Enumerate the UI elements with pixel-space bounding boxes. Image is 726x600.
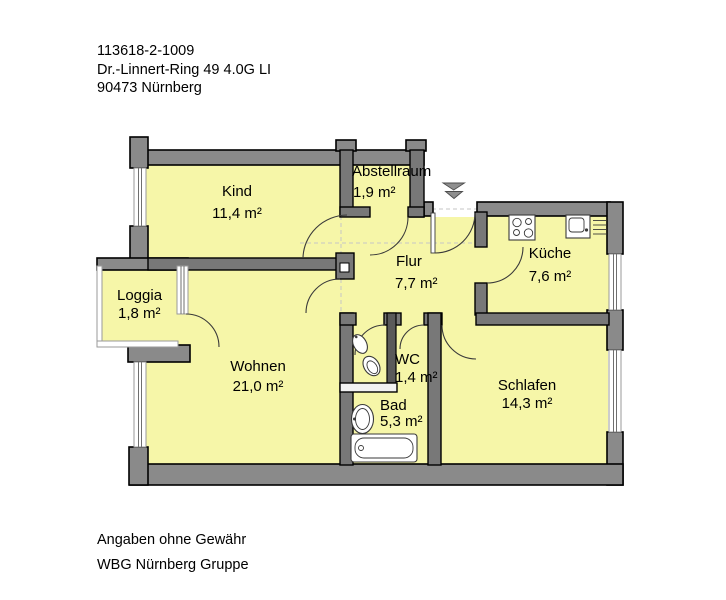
pillar-bottom-left bbox=[129, 447, 148, 485]
wall-bad-schlafen-divider bbox=[428, 313, 441, 465]
loggia-edge-bottom bbox=[97, 341, 178, 347]
wall-wc-bad-divider bbox=[340, 383, 397, 392]
abstellraum-label: Abstellraum bbox=[352, 163, 431, 180]
floorplan-page: 113618-2-1009 Dr.-Linnert-Ring 49 4.0G L… bbox=[0, 0, 726, 600]
abstellraum-area: 1,9 m² bbox=[353, 184, 396, 201]
schlafen-area: 14,3 m² bbox=[502, 395, 553, 412]
footer-disclaimer: Angaben ohne Gewähr bbox=[97, 532, 246, 548]
kind-area: 11,4 m² bbox=[212, 205, 262, 222]
floorplan-canvas: 113618-2-1009 Dr.-Linnert-Ring 49 4.0G L… bbox=[0, 0, 726, 600]
window-schlafen-right bbox=[609, 350, 621, 432]
window-kueche-right bbox=[609, 254, 621, 310]
wall-kueche-left-lower bbox=[475, 283, 487, 315]
wohnen-area: 21,0 m² bbox=[233, 378, 284, 395]
flur-area: 7,7 m² bbox=[395, 275, 438, 292]
kueche-label: Küche bbox=[529, 245, 572, 262]
wall-hall-bottom-a bbox=[340, 313, 356, 325]
kind-label: Kind bbox=[222, 183, 252, 200]
header: 113618-2-1009 Dr.-Linnert-Ring 49 4.0G L… bbox=[97, 43, 271, 96]
header-city: 90473 Nürnberg bbox=[97, 80, 202, 96]
wall-kueche-left-upper bbox=[475, 212, 487, 247]
shaft-square bbox=[340, 263, 349, 272]
wall-schlafen-top bbox=[476, 313, 609, 325]
entrance-door-leaf bbox=[431, 213, 435, 253]
wc-area: 1,4 m² bbox=[395, 369, 438, 386]
schlafen-label: Schlafen bbox=[498, 377, 556, 394]
bad-label: Bad bbox=[380, 397, 407, 414]
loggia-glass-band bbox=[177, 266, 188, 314]
pillar-top-left bbox=[130, 137, 148, 168]
loggia-edge-left bbox=[97, 266, 102, 343]
loggia-label: Loggia bbox=[117, 287, 163, 304]
bathtub-icon bbox=[351, 434, 417, 462]
window-wohnen-left bbox=[134, 362, 146, 447]
wall-kueche-top bbox=[477, 202, 610, 216]
loggia-area: 1,8 m² bbox=[118, 305, 161, 322]
header-address: Dr.-Linnert-Ring 49 4.0G LI bbox=[97, 62, 271, 78]
pillar-right-top bbox=[607, 202, 623, 254]
wall-left-loggia-bottom bbox=[128, 345, 190, 362]
wall-spine-upper bbox=[340, 150, 353, 216]
flur-label: Flur bbox=[396, 253, 422, 270]
window-kind-left bbox=[134, 168, 146, 226]
entrance-arrow-icon bbox=[443, 183, 465, 199]
wohnen-label: Wohnen bbox=[230, 358, 286, 375]
wall-bottom bbox=[130, 464, 623, 485]
stove-icon bbox=[509, 215, 535, 240]
header-reference-number: 113618-2-1009 bbox=[97, 43, 194, 59]
bad-area: 5,3 m² bbox=[380, 413, 423, 430]
kueche-area: 7,6 m² bbox=[529, 268, 572, 285]
washbasin-icon bbox=[352, 405, 374, 434]
pillar-left-mid bbox=[130, 226, 148, 262]
wc-label: WC bbox=[395, 351, 420, 368]
wall-abstellraum-bottom-right bbox=[408, 207, 424, 217]
footer-company: WBG Nürnberg Gruppe bbox=[97, 557, 249, 573]
footer: Angaben ohne Gewähr WBG Nürnberg Gruppe bbox=[97, 532, 249, 573]
